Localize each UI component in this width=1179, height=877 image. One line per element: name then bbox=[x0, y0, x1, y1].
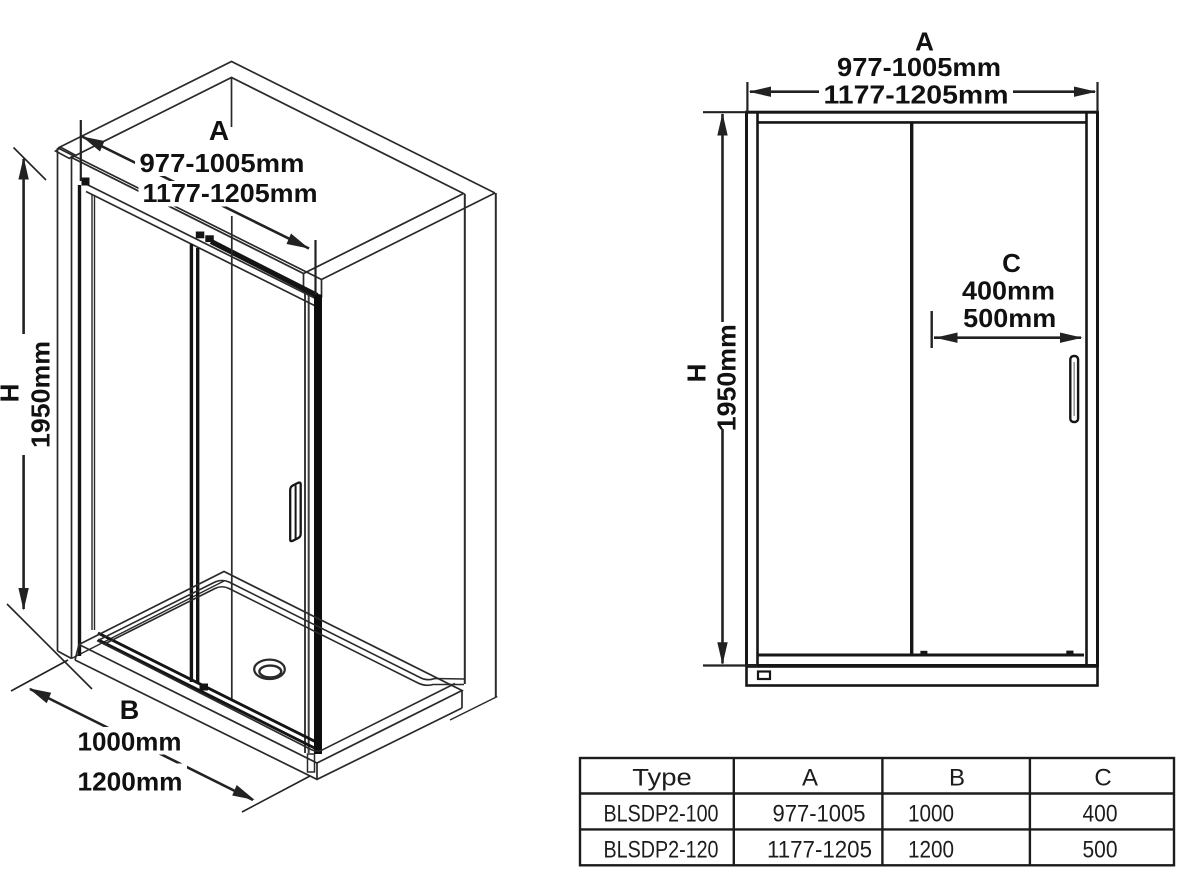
svg-text:1177-1205mm: 1177-1205mm bbox=[824, 80, 1009, 110]
svg-text:1000: 1000 bbox=[908, 801, 954, 828]
svg-text:1177-1205mm: 1177-1205mm bbox=[143, 178, 318, 208]
svg-text:1950mm: 1950mm bbox=[26, 341, 56, 448]
svg-text:A: A bbox=[802, 765, 818, 792]
svg-text:400mm: 400mm bbox=[962, 276, 1055, 306]
svg-text:1200: 1200 bbox=[908, 837, 954, 864]
svg-text:A: A bbox=[209, 115, 229, 146]
svg-text:B: B bbox=[120, 695, 140, 725]
svg-text:1200mm: 1200mm bbox=[78, 767, 183, 797]
svg-text:B: B bbox=[949, 765, 965, 792]
svg-text:500: 500 bbox=[1083, 837, 1118, 864]
svg-text:H: H bbox=[0, 384, 25, 403]
svg-text:1000mm: 1000mm bbox=[78, 727, 182, 757]
svg-text:500mm: 500mm bbox=[963, 303, 1056, 333]
svg-text:C: C bbox=[1002, 248, 1021, 278]
svg-text:1177-1205: 1177-1205 bbox=[767, 837, 872, 864]
svg-text:BLSDP2-120: BLSDP2-120 bbox=[604, 837, 719, 864]
svg-text:977-1005mm: 977-1005mm bbox=[837, 52, 1001, 82]
svg-text:Type: Type bbox=[632, 765, 692, 792]
svg-text:C: C bbox=[1094, 765, 1111, 792]
svg-text:977-1005: 977-1005 bbox=[773, 801, 866, 828]
svg-text:H: H bbox=[682, 364, 712, 383]
svg-text:977-1005mm: 977-1005mm bbox=[140, 148, 305, 178]
svg-text:400: 400 bbox=[1083, 801, 1118, 828]
svg-text:1950mm: 1950mm bbox=[712, 324, 742, 431]
svg-text:BLSDP2-100: BLSDP2-100 bbox=[604, 801, 719, 828]
